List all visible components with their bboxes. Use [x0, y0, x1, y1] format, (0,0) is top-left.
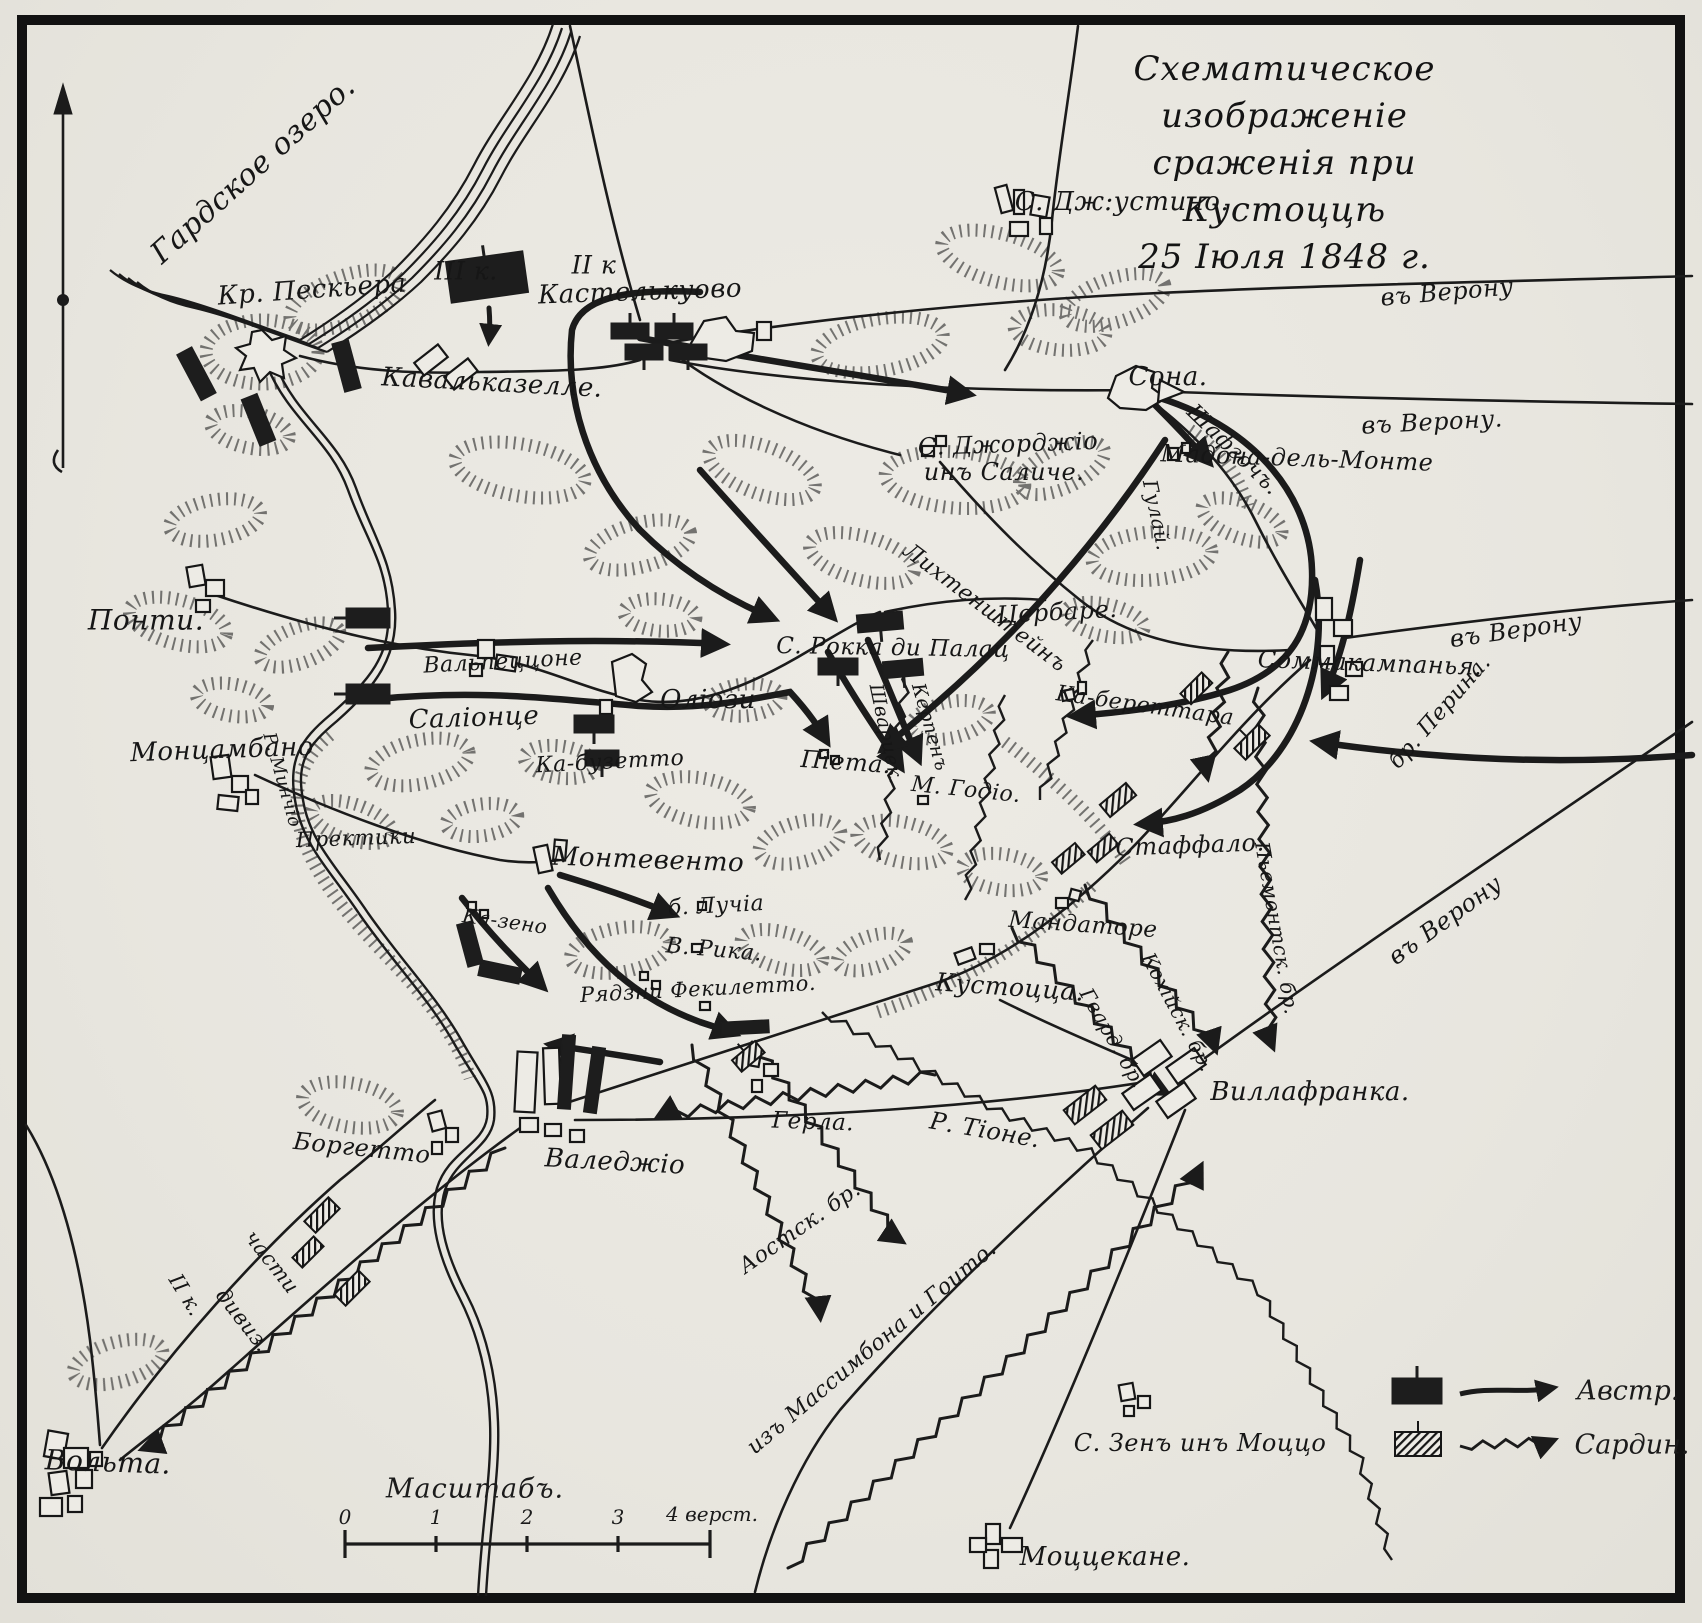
road-sommacampagna-verona	[1345, 600, 1692, 638]
town-montevento	[533, 840, 566, 874]
town-s-zeno	[1119, 1383, 1150, 1416]
hamlet-lucia-rika-fekiletto	[468, 902, 710, 1010]
town-madonna-del-monte	[1168, 443, 1190, 460]
road-valeggio-custoza-somma	[560, 660, 1310, 1105]
legend-sardinian-arrow-icon	[1460, 1438, 1552, 1449]
road-villafranca-verona	[1205, 722, 1692, 1058]
town-godio	[918, 796, 928, 804]
map-graphics	[0, 0, 1702, 1623]
roads	[26, 26, 1692, 1592]
lake-garda	[110, 24, 580, 352]
austrian-arrows	[368, 291, 1692, 1062]
legend-austrian-arrow-icon	[1460, 1388, 1552, 1394]
town-s-giorgio	[922, 436, 946, 456]
town-villafranca	[1122, 1040, 1205, 1118]
sardinian-arrows	[145, 652, 1276, 1568]
town-monz ambano	[211, 755, 258, 811]
town-mozzecane	[970, 1524, 1022, 1568]
road-valeggio-volta	[120, 1128, 520, 1460]
north-arrow-icon	[54, 84, 72, 472]
road-srocco-zerbare	[885, 599, 1045, 613]
river-mincio	[268, 366, 498, 1596]
road-to-verona-upper	[655, 276, 1692, 345]
scale-bar	[345, 1530, 710, 1558]
road-custoza-villafranca	[1000, 1000, 1150, 1068]
road-villafranca-mozzecane	[1010, 1110, 1185, 1528]
road-top-castelnuovo	[570, 26, 640, 320]
town-cavalcaselle	[414, 344, 477, 389]
towns	[40, 185, 1362, 1568]
road-volta-borghetto	[102, 1100, 435, 1448]
town-ca-berettara	[1061, 682, 1086, 701]
town-s-giustino	[995, 185, 1052, 236]
road-sona-verona	[1175, 392, 1692, 404]
legend-austrian-unit-icon	[1392, 1366, 1442, 1404]
town-mandatore	[1056, 889, 1081, 908]
legend-sardinian-unit-icon	[1395, 1421, 1441, 1456]
town-pieta	[820, 750, 839, 764]
town-volta	[40, 1430, 102, 1516]
battle-map-custoza: Схематическое изображеніе сраженія при К…	[0, 0, 1702, 1623]
road-border-volta	[26, 1125, 100, 1445]
map-frame	[22, 20, 1680, 1598]
town-borghetto	[428, 1110, 458, 1154]
sardinian-units	[292, 672, 1269, 1305]
legend-symbols	[1392, 1366, 1552, 1456]
